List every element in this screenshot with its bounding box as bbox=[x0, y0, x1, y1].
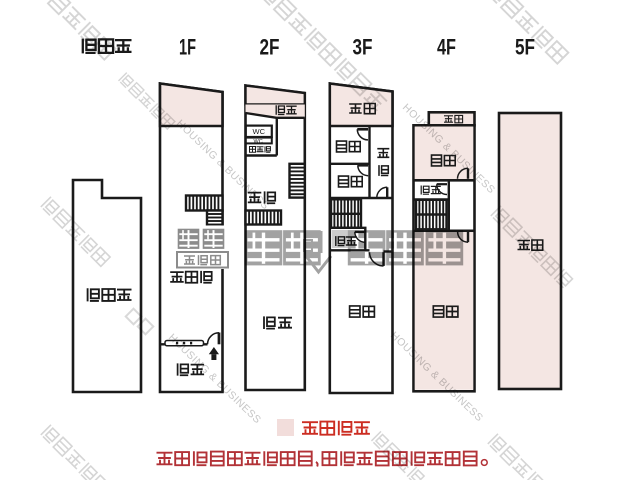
svg-text:4F: 4F bbox=[437, 35, 456, 60]
svg-text:1F: 1F bbox=[179, 35, 196, 60]
svg-text:WC: WC bbox=[253, 127, 266, 136]
svg-text:2F: 2F bbox=[260, 35, 280, 60]
svg-text:WC: WC bbox=[254, 139, 263, 145]
svg-text:3F: 3F bbox=[353, 35, 373, 60]
